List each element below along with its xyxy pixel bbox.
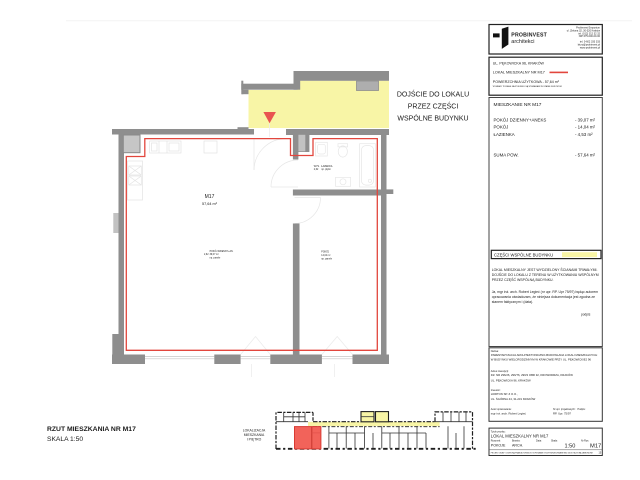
svg-text:mgr inż. arch. Robert Legieć: mgr inż. arch. Robert Legieć [491,412,527,416]
svg-text:WYMIARY PODANE NA RYSUNKU SĄ W: WYMIARY PODANE NA RYSUNKU SĄ WYMIARAMI W… [493,85,562,88]
svg-text:SUMA POW.: SUMA POW. [494,152,519,157]
svg-text:39,07 m²: 39,07 m² [210,253,219,256]
svg-text:NIP 675-000-00-00: NIP 675-000-00-00 [579,35,601,38]
svg-text:np. panele: np. panele [321,258,332,260]
svg-text:14,04 m²: 14,04 m² [321,254,330,257]
svg-text:POWIERZCHNIA UŻYTKOWA - 57,64: POWIERZCHNIA UŻYTKOWA - 57,64 m² [493,79,560,84]
svg-text:- 14,04 m²: - 14,04 m² [575,125,596,130]
svg-text:PROBINVEST: PROBINVEST [511,32,547,38]
svg-text:RP. Upr. 75/97: RP. Upr. 75/97 [553,412,571,416]
svg-text:2,62: 2,62 [314,169,319,171]
svg-text:ARCH.: ARCH. [512,444,523,448]
svg-text:POKÓJ: POKÓJ [321,251,329,254]
svg-text:PROJEKT OBJĘTY OCHRONĄ PRAW AU: PROJEKT OBJĘTY OCHRONĄ PRAW AUTORSKICH. … [491,451,594,454]
svg-text:LOKAL MIESZKALNY NR M17: LOKAL MIESZKALNY NR M17 [493,71,545,75]
svg-text:np. panele: np. panele [210,258,221,260]
svg-text:M17: M17 [590,444,601,450]
svg-text:2,62: 2,62 [204,254,209,256]
svg-text:opracowania oświadczam, że nin: opracowania oświadczam, że niniejsza dok… [492,295,595,299]
svg-text:DOJŚCIE DO LOKALU: DOJŚCIE DO LOKALU [397,90,469,99]
svg-text:architekci: architekci [511,39,534,45]
svg-text:MIESZKANIE NR M17: MIESZKANIE NR M17 [494,102,542,108]
svg-text:- 39,07 m²: - 39,07 m² [575,117,596,122]
svg-text:Nr Rys:: Nr Rys: [581,440,589,443]
svg-text:POKÓJ DZIENNY+ANEKS: POKÓJ DZIENNY+ANEKS [494,117,547,122]
svg-text:MIESZKANIA: MIESZKANIA [244,433,265,437]
svg-text:W BUDYNKU WIELORODZINNYM W KRA: W BUDYNKU WIELORODZINNYM W KRAKOWIE PRZY… [491,358,592,362]
svg-text:UL. ŚGÓRNA 44, 31-231 KRAKÓW: UL. ŚGÓRNA 44, 31-231 KRAKÓW [491,396,536,401]
svg-text:Podpis:: Podpis: [578,408,586,411]
svg-text:np. płytki: np. płytki [321,168,331,171]
svg-text:POKOJE: POKOJE [491,444,506,448]
svg-text:57,64 m²: 57,64 m² [202,202,218,206]
svg-text:ŁAZIENKA: ŁAZIENKA [494,132,515,137]
svg-text:LOKAL MIESZKALNY JEST WYDZIEL: LOKAL MIESZKALNY JEST WYDZIELONY ŚCIANAM… [492,267,598,272]
svg-text:podpis: podpis [581,312,591,316]
svg-text:INWENTARYZACJA ARCHITEKTONICZN: INWENTARYZACJA ARCHITEKTONICZNO-BUDOWLAN… [491,353,597,357]
svg-text:stanem faktycznym i (data).: stanem faktycznym i (data). [492,300,534,304]
svg-text:I PIĘTRO: I PIĘTRO [247,438,262,442]
svg-text:Skala:: Skala: [551,440,558,443]
svg-text:HORTON SP. Z O.O.,: HORTON SP. Z O.O., [491,392,518,396]
svg-text:SKALA 1:50: SKALA 1:50 [47,436,83,443]
svg-text:LOKAL MIESZKALNY NR M17: LOKAL MIESZKALNY NR M17 [491,433,549,438]
svg-text:- 57,64 m²: - 57,64 m² [575,152,596,157]
svg-text:WSPÓLNE BUDYNKU: WSPÓLNE BUDYNKU [397,114,468,123]
svg-text:www.probinvest.pl: www.probinvest.pl [580,46,601,49]
svg-text:Ja, mgr inż. arch. Robert Legi: Ja, mgr inż. arch. Robert Legieć (nr upr… [492,290,599,294]
svg-text:PRZEZ CZĘŚCI: PRZEZ CZĘŚCI [408,102,459,111]
svg-text:WYS.: WYS. [314,166,320,168]
svg-text:PRZEZ CZĘŚĆ WSPÓLNĄ BUDYNKU.: PRZEZ CZĘŚĆ WSPÓLNĄ BUDYNKU. [492,277,554,282]
svg-text:Rysunek:: Rysunek: [491,440,501,443]
svg-text:RZUT MIESZKANIA NR M17: RZUT MIESZKANIA NR M17 [47,426,136,433]
svg-text:M17: M17 [205,194,215,200]
svg-text:POKÓJ DZIENNY+AN.: POKÓJ DZIENNY+AN. [210,250,234,253]
svg-text:Data:: Data: [536,440,542,443]
svg-text:- 4,53 m²: - 4,53 m² [575,132,593,137]
svg-text:LOKALIZACJA: LOKALIZACJA [243,429,266,433]
svg-text:1:50: 1:50 [565,443,576,449]
svg-text:DOJŚCIE DO LOKALU Z TERENU W U: DOJŚCIE DO LOKALU Z TERENU W UŻYTKOWANIU… [492,272,599,277]
svg-text:UL. PĘKOWICKA 96, KRAKÓW: UL. PĘKOWICKA 96, KRAKÓW [493,60,545,65]
svg-text:UL. PĘKOWICKA 96, KRAKÓW: UL. PĘKOWICKA 96, KRAKÓW [491,377,531,382]
svg-text:Branża:: Branża: [512,440,521,443]
svg-text:DZ. NR 296/26, 296/76, 296/3 O: DZ. NR 296/26, 296/76, 296/3 OBR 32, KRO… [491,372,573,377]
svg-text:ŁAZIENKA: ŁAZIENKA [321,165,333,168]
svg-text:CZĘŚCI WSPÓLNE BUDYNKU: CZĘŚCI WSPÓLNE BUDYNKU [494,252,553,257]
svg-text:POKÓJ: POKÓJ [494,125,509,130]
